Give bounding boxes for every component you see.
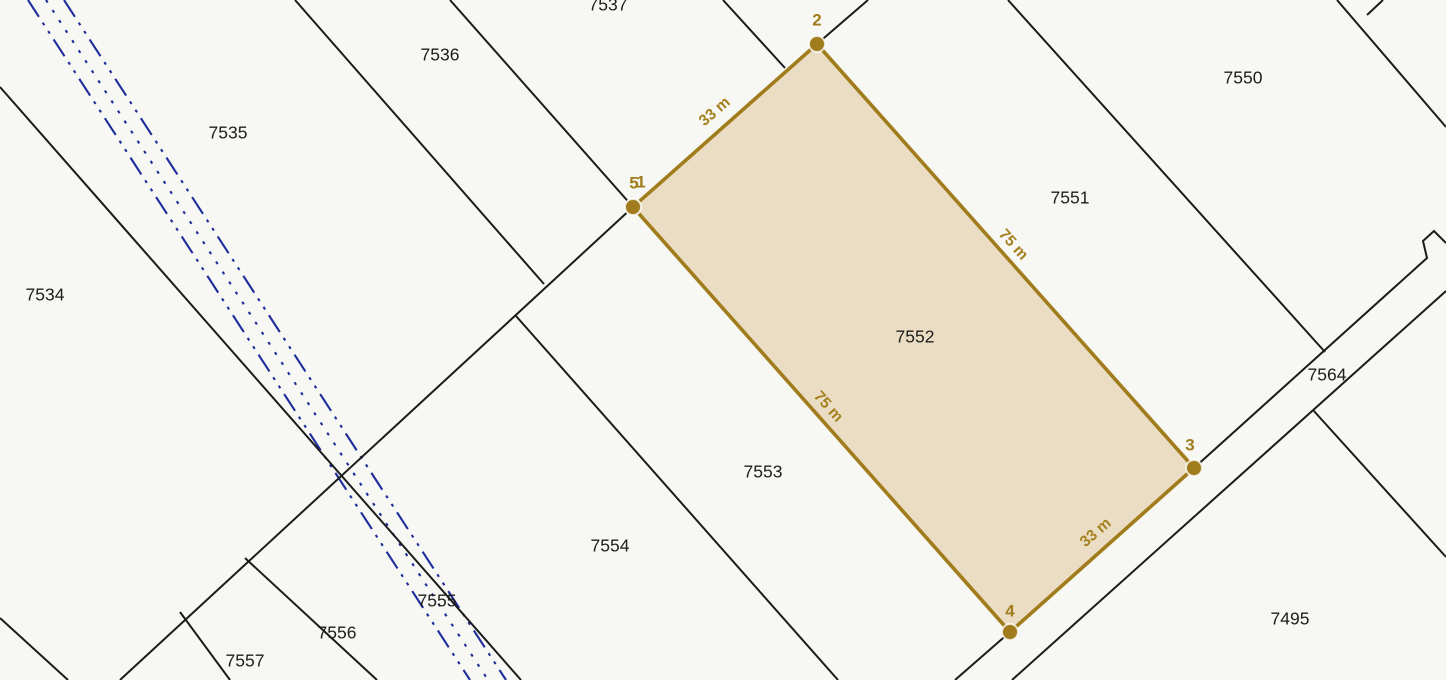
boundary-strip-7550-7551 (1008, 0, 1325, 352)
parcel-label-7552: 7552 (896, 327, 935, 347)
parcel-label-7564: 7564 (1308, 365, 1347, 385)
vertex-number-4: 4 (1005, 601, 1015, 620)
parcel-label-7537: 7537 (589, 0, 628, 15)
parcel-label-7556: 7556 (318, 623, 357, 643)
vertex-marker-5[interactable] (625, 199, 641, 215)
vertex-marker-3[interactable] (1186, 460, 1202, 476)
parcel-label-7495: 7495 (1271, 609, 1310, 629)
vertex-number-5: 5 (629, 173, 638, 192)
parcel-label-7550: 7550 (1224, 68, 1263, 88)
boundary-strip-7495-right (1313, 410, 1446, 557)
parcel-label-7555: 7555 (418, 591, 457, 611)
parcel-label-7536: 7536 (421, 45, 460, 65)
utility-dashdot-west-line (28, 0, 470, 680)
parcel-label-7534: 7534 (26, 285, 65, 305)
vertex-marker-4[interactable] (1002, 624, 1018, 640)
parcel-label-7535: 7535 (209, 123, 248, 143)
vertex-number-3: 3 (1185, 435, 1194, 454)
boundary-strip-7535-7536 (295, 0, 544, 284)
boundary-strip-7555-7556 (245, 558, 377, 680)
cadastral-map-svg[interactable]: 33 m75 m75 m33 m123457552753475357536753… (0, 0, 1446, 680)
boundary-strip-7536-7537 (450, 0, 633, 207)
boundary-spur-top-right (1367, 0, 1383, 15)
cadastral-map-canvas[interactable]: 33 m75 m75 m33 m123457552753475357536753… (0, 0, 1446, 680)
vertex-marker-2[interactable] (809, 36, 825, 52)
parcel-label-7554: 7554 (591, 536, 630, 556)
boundary-strip-7537-right (723, 0, 785, 68)
utility-dashdot-east-line (64, 0, 506, 680)
boundary-strip-corner-bottom-left (0, 618, 68, 680)
boundary-cross-line-vertex2 (817, 0, 868, 44)
parcel-label-7557: 7557 (226, 651, 265, 671)
vertex-number-2: 2 (812, 10, 821, 29)
parcel-label-7551: 7551 (1051, 188, 1090, 208)
boundary-cross-line-long (120, 207, 633, 680)
parcel-label-7553: 7553 (744, 462, 783, 482)
boundary-strip-top-right-corner (1337, 0, 1446, 127)
boundary-strip-7556-7557 (180, 612, 230, 680)
